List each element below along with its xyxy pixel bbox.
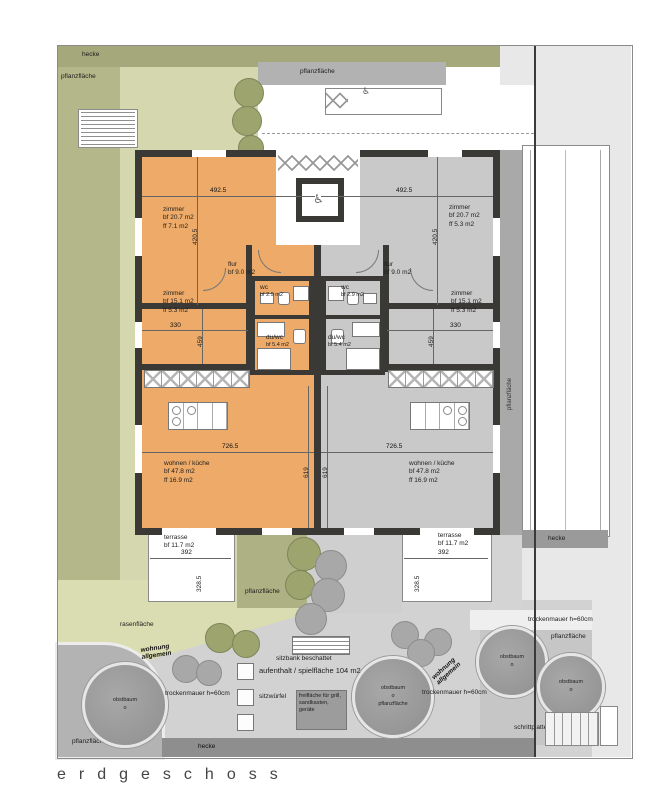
tree-icon xyxy=(234,78,264,108)
tree-icon xyxy=(196,660,222,686)
dim-line xyxy=(321,452,493,453)
ramp-hatch xyxy=(326,89,348,112)
room-label-flur-right: flur bf 9.0 m2 xyxy=(384,261,411,278)
planting-label-topleft: pflanzfläche xyxy=(61,73,96,81)
site-plan: hecke pflanzfläche pflanzfläche ♿ pflanz… xyxy=(0,0,656,800)
room-label-zimmer2-left: zimmer bf 15.1 m2 ff 5.3 m2 xyxy=(163,290,194,315)
hedge-label-top: hecke xyxy=(82,51,99,59)
room-label-wc-left: wc bf 2.9 m2 xyxy=(260,284,283,300)
planting-label-topcenter: pflanzfläche xyxy=(300,68,335,76)
dim-label: 392 xyxy=(438,549,449,556)
drywall-label-right: trockenmauer h=60cm xyxy=(528,616,593,624)
planting-strip-topcenter xyxy=(258,62,446,85)
seat-cube xyxy=(237,714,254,731)
drywall-label-left: trockenmauer h=60cm xyxy=(165,690,230,698)
window xyxy=(493,218,500,256)
room-label-wohnen-left: wohnen / küche bf 47.8 m2 ff 16.9 m2 xyxy=(164,460,210,485)
open-space-box: freifläche für grill, sandkasten, geräte xyxy=(296,690,347,730)
room-label-terrasse-left: terrasse bf 11.7 m2 xyxy=(164,534,194,551)
bench xyxy=(292,636,350,655)
dim-label: 492.5 xyxy=(210,187,226,194)
dim-line xyxy=(404,558,488,559)
dim-line xyxy=(142,196,315,197)
party-wall xyxy=(314,245,321,528)
kitchen-counter-left xyxy=(144,370,250,388)
hedge-label-right: hecke xyxy=(548,535,565,543)
room-label-zimmer2-right: zimmer bf 15.1 m2 ff 5.3 m2 xyxy=(451,290,482,315)
hedge-label-bottom: hecke xyxy=(198,743,215,751)
dim-label: 420.5 xyxy=(432,229,439,245)
window xyxy=(262,528,292,535)
fruit-tree-planting-label: pflanzfläche xyxy=(378,701,407,709)
dim-line xyxy=(142,330,248,331)
tree-icon xyxy=(205,623,235,653)
room-label-terrasse-right: terrasse bf 11.7 m2 xyxy=(438,532,468,549)
lawn-label: rasenfläche xyxy=(120,621,154,629)
room-label-wohnen-right: wohnen / küche bf 47.8 m2 ff 16.9 m2 xyxy=(409,460,455,485)
dim-label: 328.5 xyxy=(196,576,203,592)
dim-label: 330 xyxy=(170,322,181,329)
window xyxy=(344,528,374,535)
tree-icon xyxy=(315,550,347,582)
fruit-tree-mark: o xyxy=(510,662,513,670)
sink xyxy=(363,293,377,304)
wheelchair-icon: ♿ xyxy=(313,192,324,206)
path-patch-right xyxy=(490,535,522,612)
bench-label: sitzbank beschattet xyxy=(276,655,332,663)
room-label-wc-right: wc bf 2.9 m2 xyxy=(341,284,364,300)
open-space-label: freifläche für grill, sandkasten, geräte xyxy=(299,693,344,714)
stepping-stones xyxy=(545,712,599,746)
tree-icon xyxy=(295,603,327,635)
kitchen-island-left xyxy=(168,402,228,430)
tree-icon xyxy=(232,630,260,658)
room-label-zimmer1-right: zimmer bf 20.7 m2 ff 5.3 m2 xyxy=(449,204,480,229)
room-label-duwc-left: du/wc bf 5.4 m2 xyxy=(266,334,289,350)
planting-label-center: pflanzfläche xyxy=(245,588,280,596)
shower xyxy=(346,348,380,370)
window xyxy=(135,425,142,473)
court-dashed-line xyxy=(262,133,534,134)
planting-label-right: pflanzfläche xyxy=(507,378,513,410)
corner-marker xyxy=(600,706,618,746)
wall xyxy=(142,303,248,309)
dim-label: 330 xyxy=(450,322,461,329)
dim-line xyxy=(150,558,231,559)
property-line xyxy=(534,45,536,757)
kitchen-island-right xyxy=(410,402,470,430)
tree-icon xyxy=(232,106,262,136)
window xyxy=(135,218,142,256)
dim-line xyxy=(327,386,328,528)
fruit-tree-mark: o xyxy=(569,687,572,695)
room-label-duwc-right: du/wc bf 5.4 m2 xyxy=(328,334,351,350)
carport-line-right xyxy=(600,150,601,530)
fruit-tree-mark: o xyxy=(391,693,394,701)
planting-band-left xyxy=(58,67,120,642)
dim-label: 459 xyxy=(197,336,204,347)
window xyxy=(493,425,500,473)
play-area-label: aufenthalt / spielfläche 104 m2 xyxy=(259,666,361,676)
vanity xyxy=(352,322,380,337)
window xyxy=(428,150,462,157)
window xyxy=(135,322,142,348)
dim-line xyxy=(387,330,493,331)
fruit-tree-mark: o xyxy=(123,705,126,713)
dim-label: 726.5 xyxy=(386,443,402,450)
fruit-tree-label: obstbaum xyxy=(500,654,524,662)
fruit-tree-circle: obstbaum o xyxy=(537,653,605,721)
toilet xyxy=(293,329,306,344)
hedge-strip-bottom xyxy=(162,738,535,757)
pergola xyxy=(79,110,137,147)
drywall-label-center: trockenmauer h=60cm xyxy=(422,689,487,697)
window xyxy=(493,322,500,348)
planting-strip-right xyxy=(500,150,522,535)
dim-label: 328.5 xyxy=(414,576,421,592)
room-label-zimmer1-left: zimmer bf 20.7 m2 ff 7.1 m2 xyxy=(163,206,194,231)
seat-cube xyxy=(237,689,254,706)
shower xyxy=(257,348,291,370)
kitchen-counter-right xyxy=(388,370,494,388)
planting-label-bottomright: pflanzfläche xyxy=(551,633,586,641)
fruit-tree-label: obstbaum xyxy=(113,697,137,705)
carport-line-left xyxy=(530,150,531,530)
seat-cube xyxy=(237,663,254,680)
fruit-tree-label: obstbaum xyxy=(559,679,583,687)
dim-line xyxy=(142,452,314,453)
dim-label: 492.5 xyxy=(396,187,412,194)
dim-label: 459 xyxy=(428,336,435,347)
stairs xyxy=(278,152,358,174)
dim-label: 619 xyxy=(322,467,329,478)
washer xyxy=(293,286,309,301)
dim-label: 619 xyxy=(303,467,310,478)
carport-line-center xyxy=(565,150,566,530)
room-label-flur-left: flur bf 9.0 m2 xyxy=(228,261,255,278)
dim-line xyxy=(308,386,309,528)
window xyxy=(192,150,226,157)
dim-line xyxy=(321,196,493,197)
dim-label: 726.5 xyxy=(222,443,238,450)
wheelchair-icon: ♿ xyxy=(362,86,370,97)
fruit-tree-circle: obstbaum o xyxy=(82,662,168,748)
seat-cube-label: sitzwürfel xyxy=(259,693,286,701)
page-title: erdgeschoss xyxy=(57,766,291,784)
fruit-tree-label: obstbaum xyxy=(381,685,405,693)
